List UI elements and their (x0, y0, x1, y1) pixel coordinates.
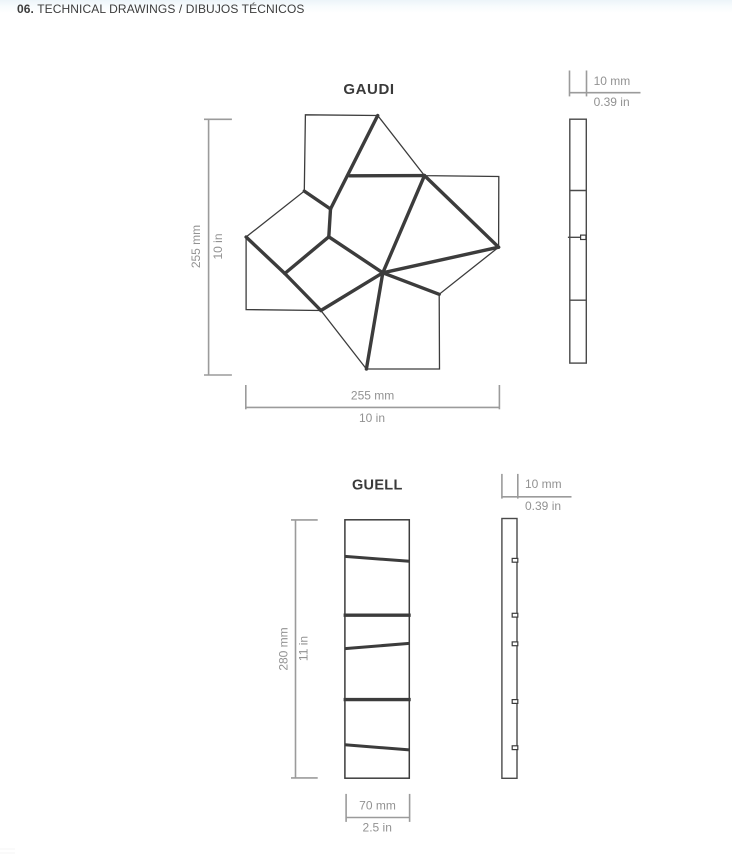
svg-text:10 mm: 10 mm (594, 74, 631, 88)
svg-text:70 mm: 70 mm (359, 799, 396, 813)
svg-text:10 in: 10 in (359, 411, 385, 425)
svg-text:0.39 in: 0.39 in (525, 499, 561, 513)
svg-text:11 in: 11 in (297, 636, 311, 661)
svg-text:GUELL: GUELL (352, 477, 403, 493)
svg-text:GAUDI: GAUDI (343, 81, 394, 98)
svg-text:255 mm: 255 mm (351, 389, 394, 403)
svg-text:10 in: 10 in (211, 233, 225, 259)
svg-text:2.5 in: 2.5 in (363, 821, 392, 835)
svg-text:280 mm: 280 mm (276, 627, 290, 670)
svg-text:10 mm: 10 mm (525, 477, 562, 491)
svg-text:0.39 in: 0.39 in (594, 95, 630, 109)
svg-text:255 mm: 255 mm (189, 225, 203, 268)
